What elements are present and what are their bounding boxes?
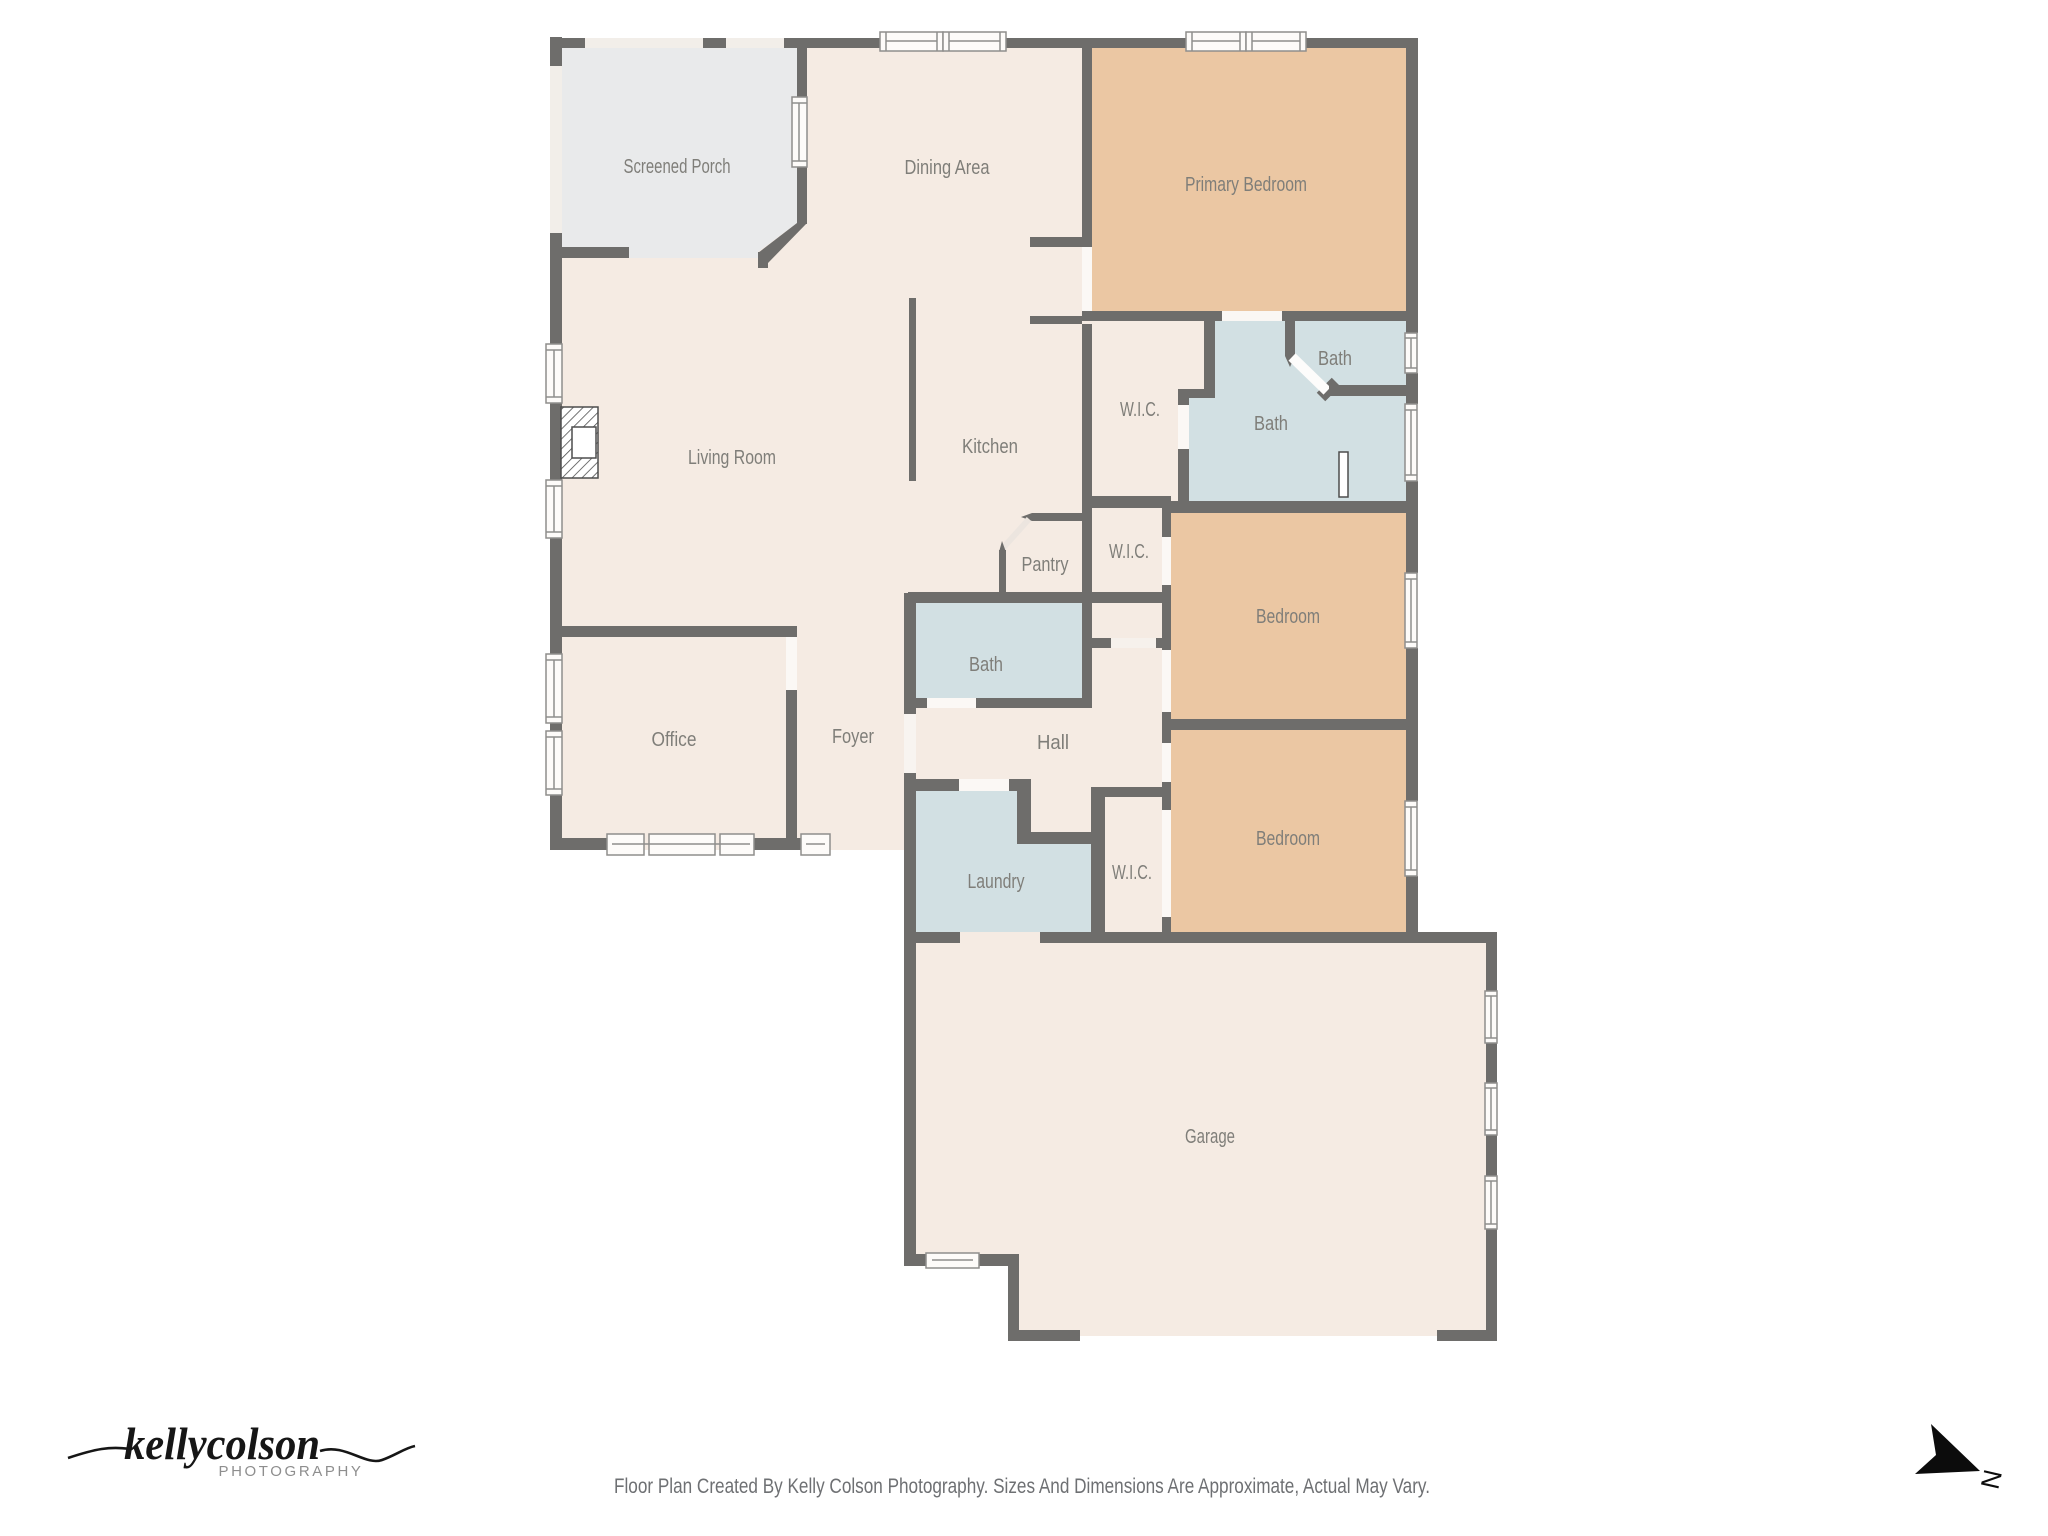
svg-text:W.I.C.: W.I.C. xyxy=(1109,541,1149,563)
svg-text:Floor Plan Created By Kelly Co: Floor Plan Created By Kelly Colson Photo… xyxy=(614,1475,1430,1498)
svg-text:Hall: Hall xyxy=(1037,732,1069,754)
svg-text:Garage: Garage xyxy=(1185,1126,1235,1148)
svg-text:Bath: Bath xyxy=(1318,348,1352,370)
svg-text:W.I.C.: W.I.C. xyxy=(1112,862,1152,884)
svg-text:Screened Porch: Screened Porch xyxy=(624,156,731,178)
svg-text:Foyer: Foyer xyxy=(832,726,874,748)
svg-text:kellycolson: kellycolson xyxy=(124,1419,320,1469)
svg-text:Living Room: Living Room xyxy=(688,447,776,469)
svg-text:Laundry: Laundry xyxy=(968,871,1025,893)
svg-text:Bath: Bath xyxy=(1254,413,1288,435)
svg-text:Bedroom: Bedroom xyxy=(1256,828,1320,850)
svg-text:Bedroom: Bedroom xyxy=(1256,606,1320,628)
svg-text:PHOTOGRAPHY: PHOTOGRAPHY xyxy=(218,1463,363,1480)
svg-text:Pantry: Pantry xyxy=(1022,554,1069,576)
svg-text:Kitchen: Kitchen xyxy=(962,436,1018,458)
svg-text:Dining Area: Dining Area xyxy=(905,157,991,179)
svg-text:Bath: Bath xyxy=(969,654,1003,676)
svg-text:W.I.C.: W.I.C. xyxy=(1120,399,1160,421)
svg-text:Primary Bedroom: Primary Bedroom xyxy=(1185,174,1307,196)
svg-text:Office: Office xyxy=(652,729,697,751)
